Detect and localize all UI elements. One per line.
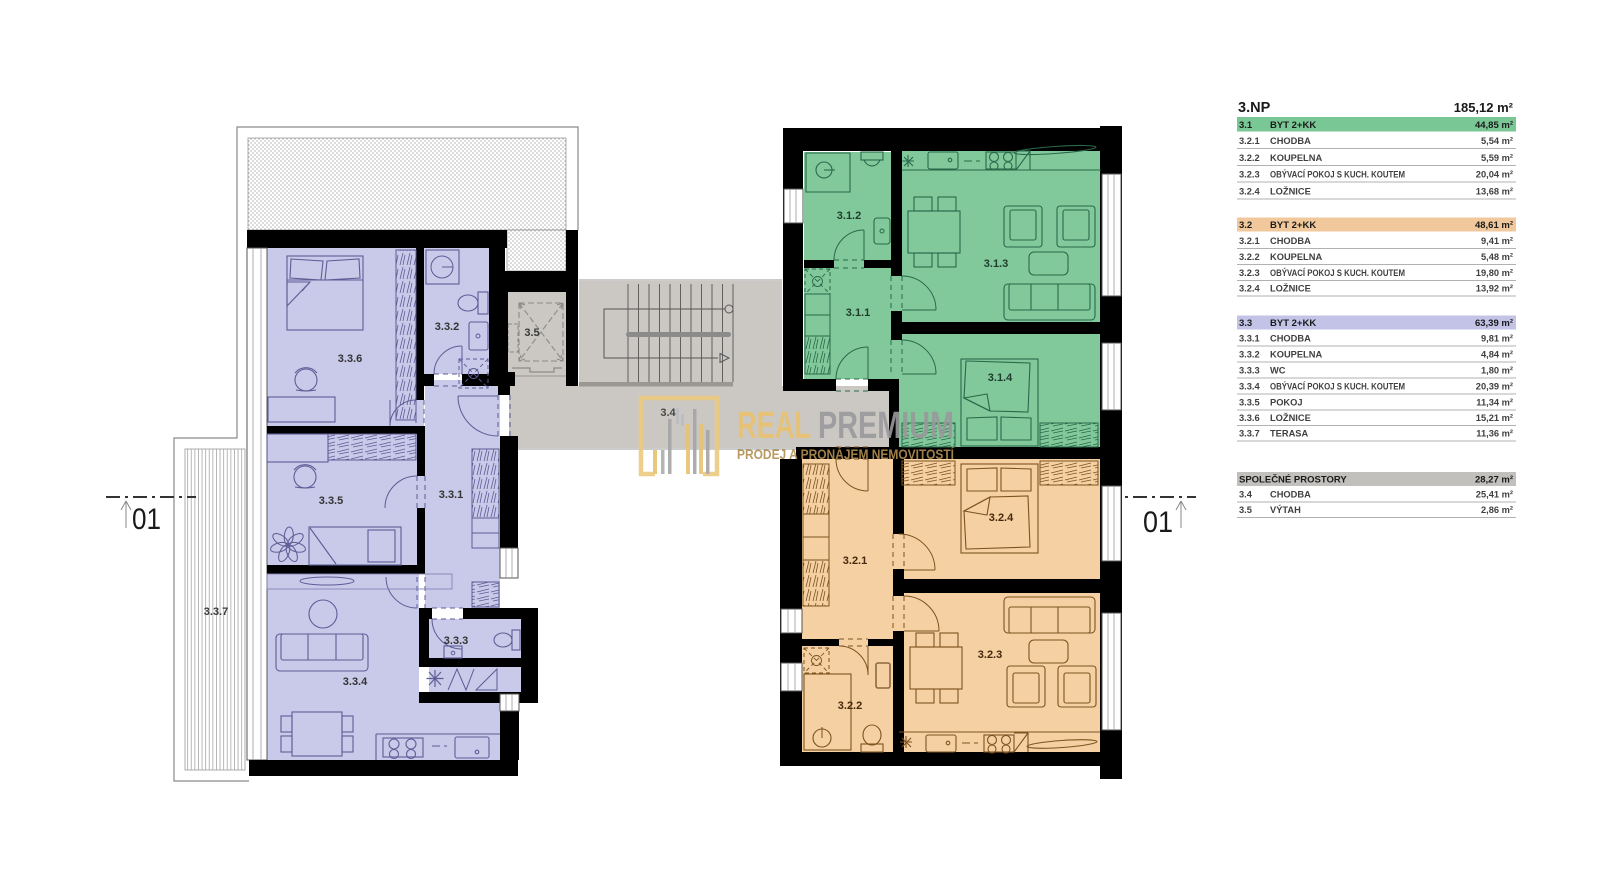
svg-text:LOŽNICE: LOŽNICE bbox=[1270, 283, 1311, 294]
svg-text:3.1.1: 3.1.1 bbox=[846, 307, 870, 319]
svg-text:5,54 m²: 5,54 m² bbox=[1481, 136, 1513, 146]
svg-text:2,86 m²: 2,86 m² bbox=[1481, 505, 1513, 515]
svg-text:185,12 m²: 185,12 m² bbox=[1454, 100, 1514, 115]
svg-text:PREMIUM: PREMIUM bbox=[818, 405, 954, 447]
svg-text:11,36 m²: 11,36 m² bbox=[1476, 429, 1513, 439]
svg-text:28,27 m²: 28,27 m² bbox=[1475, 475, 1513, 486]
svg-text:3.2.1: 3.2.1 bbox=[1239, 136, 1260, 146]
svg-text:CHODBA: CHODBA bbox=[1270, 490, 1311, 500]
svg-text:13,92 m²: 13,92 m² bbox=[1476, 284, 1513, 294]
svg-text:3.3.2: 3.3.2 bbox=[1239, 350, 1260, 360]
svg-text:SPOLEČNÉ PROSTORY: SPOLEČNÉ PROSTORY bbox=[1239, 474, 1347, 486]
svg-text:9,81 m²: 9,81 m² bbox=[1481, 334, 1513, 344]
svg-text:3.3: 3.3 bbox=[1239, 318, 1252, 329]
svg-text:CHODBA: CHODBA bbox=[1270, 236, 1311, 246]
svg-text:13,68 m²: 13,68 m² bbox=[1476, 187, 1513, 197]
svg-text:01: 01 bbox=[132, 503, 161, 536]
svg-text:3.2.1: 3.2.1 bbox=[843, 555, 867, 567]
svg-text:3.3.5: 3.3.5 bbox=[1239, 398, 1260, 408]
svg-text:3.3.3: 3.3.3 bbox=[444, 635, 468, 647]
svg-text:BYT 2+KK: BYT 2+KK bbox=[1270, 318, 1316, 329]
svg-text:3.4: 3.4 bbox=[660, 407, 676, 419]
svg-text:TERASA: TERASA bbox=[1270, 429, 1309, 439]
svg-text:48,61 m²: 48,61 m² bbox=[1475, 220, 1513, 231]
svg-text:44,85 m²: 44,85 m² bbox=[1475, 120, 1513, 131]
svg-text:REAL: REAL bbox=[737, 405, 811, 447]
svg-text:BYT 2+KK: BYT 2+KK bbox=[1270, 120, 1316, 131]
svg-text:15,21 m²: 15,21 m² bbox=[1476, 413, 1513, 423]
svg-text:3.3.1: 3.3.1 bbox=[439, 489, 463, 501]
svg-text:KOUPELNA: KOUPELNA bbox=[1270, 252, 1322, 262]
svg-text:3.2.2: 3.2.2 bbox=[838, 700, 862, 712]
svg-text:CHODBA: CHODBA bbox=[1270, 136, 1311, 146]
svg-text:LOŽNICE: LOŽNICE bbox=[1270, 186, 1311, 197]
svg-text:3.4: 3.4 bbox=[1239, 490, 1253, 500]
svg-text:3.3.2: 3.3.2 bbox=[435, 321, 459, 333]
svg-text:BYT 2+KK: BYT 2+KK bbox=[1270, 220, 1316, 231]
svg-text:3.2.1: 3.2.1 bbox=[1239, 236, 1260, 246]
svg-text:OBÝVACÍ POKOJ S KUCH. KOUTEM: OBÝVACÍ POKOJ S KUCH. KOUTEM bbox=[1270, 381, 1405, 392]
svg-text:20,04 m²: 20,04 m² bbox=[1476, 170, 1513, 180]
svg-text:KOUPELNA: KOUPELNA bbox=[1270, 153, 1322, 163]
svg-text:63,39 m²: 63,39 m² bbox=[1475, 318, 1513, 329]
svg-text:3.3.3: 3.3.3 bbox=[1239, 366, 1260, 376]
svg-text:3.2.3: 3.2.3 bbox=[1239, 268, 1260, 278]
svg-text:5,48 m²: 5,48 m² bbox=[1481, 252, 1513, 262]
svg-text:WC: WC bbox=[1270, 366, 1286, 376]
svg-text:3.3.4: 3.3.4 bbox=[343, 676, 368, 688]
svg-text:9,41 m²: 9,41 m² bbox=[1481, 236, 1513, 246]
svg-text:3.3.1: 3.3.1 bbox=[1239, 334, 1260, 344]
svg-text:3.1: 3.1 bbox=[1239, 120, 1253, 131]
svg-text:01: 01 bbox=[1143, 506, 1173, 539]
svg-text:OBÝVACÍ POKOJ S KUCH. KOUTEM: OBÝVACÍ POKOJ S KUCH. KOUTEM bbox=[1270, 169, 1405, 180]
svg-text:11,34 m²: 11,34 m² bbox=[1476, 398, 1513, 408]
svg-text:3.5: 3.5 bbox=[1239, 505, 1252, 515]
svg-text:3.1.4: 3.1.4 bbox=[988, 372, 1013, 384]
svg-text:VÝTAH: VÝTAH bbox=[1270, 504, 1301, 515]
svg-text:3.2.4: 3.2.4 bbox=[1239, 187, 1261, 197]
svg-text:POKOJ: POKOJ bbox=[1270, 398, 1303, 408]
svg-text:3.3.7: 3.3.7 bbox=[204, 606, 228, 618]
svg-text:3.1.2: 3.1.2 bbox=[837, 210, 861, 222]
svg-text:LOŽNICE: LOŽNICE bbox=[1270, 412, 1311, 423]
svg-text:4,84 m²: 4,84 m² bbox=[1481, 350, 1513, 360]
svg-text:25,41 m²: 25,41 m² bbox=[1476, 490, 1513, 500]
svg-text:3.3.6: 3.3.6 bbox=[338, 353, 362, 365]
svg-text:1,80 m²: 1,80 m² bbox=[1481, 366, 1513, 376]
svg-text:3.2: 3.2 bbox=[1239, 220, 1252, 231]
svg-text:5,59 m²: 5,59 m² bbox=[1481, 153, 1513, 163]
svg-text:3.2.4: 3.2.4 bbox=[989, 512, 1014, 524]
svg-text:KOUPELNA: KOUPELNA bbox=[1270, 350, 1322, 360]
svg-text:19,80 m²: 19,80 m² bbox=[1476, 268, 1513, 278]
svg-text:3.5: 3.5 bbox=[524, 327, 539, 339]
svg-text:3.1.3: 3.1.3 bbox=[984, 258, 1008, 270]
svg-text:3.3.7: 3.3.7 bbox=[1239, 429, 1260, 439]
svg-text:OBÝVACÍ POKOJ S KUCH. KOUTEM: OBÝVACÍ POKOJ S KUCH. KOUTEM bbox=[1270, 267, 1405, 278]
svg-text:3.2.2: 3.2.2 bbox=[1239, 252, 1260, 262]
svg-text:20,39 m²: 20,39 m² bbox=[1476, 382, 1513, 392]
svg-text:3.2.3: 3.2.3 bbox=[978, 649, 1002, 661]
svg-text:3.2.4: 3.2.4 bbox=[1239, 284, 1261, 294]
svg-text:3.3.6: 3.3.6 bbox=[1239, 413, 1260, 423]
svg-text:3.NP: 3.NP bbox=[1238, 100, 1271, 116]
svg-text:PRODEJ A PRONÁJEM NEMOVITOSTÍ: PRODEJ A PRONÁJEM NEMOVITOSTÍ bbox=[737, 447, 955, 462]
svg-text:3.2.2: 3.2.2 bbox=[1239, 153, 1260, 163]
svg-text:3.3.5: 3.3.5 bbox=[319, 495, 343, 507]
svg-text:3.3.4: 3.3.4 bbox=[1239, 382, 1261, 392]
svg-text:3.2.3: 3.2.3 bbox=[1239, 170, 1260, 180]
svg-text:CHODBA: CHODBA bbox=[1270, 334, 1311, 344]
